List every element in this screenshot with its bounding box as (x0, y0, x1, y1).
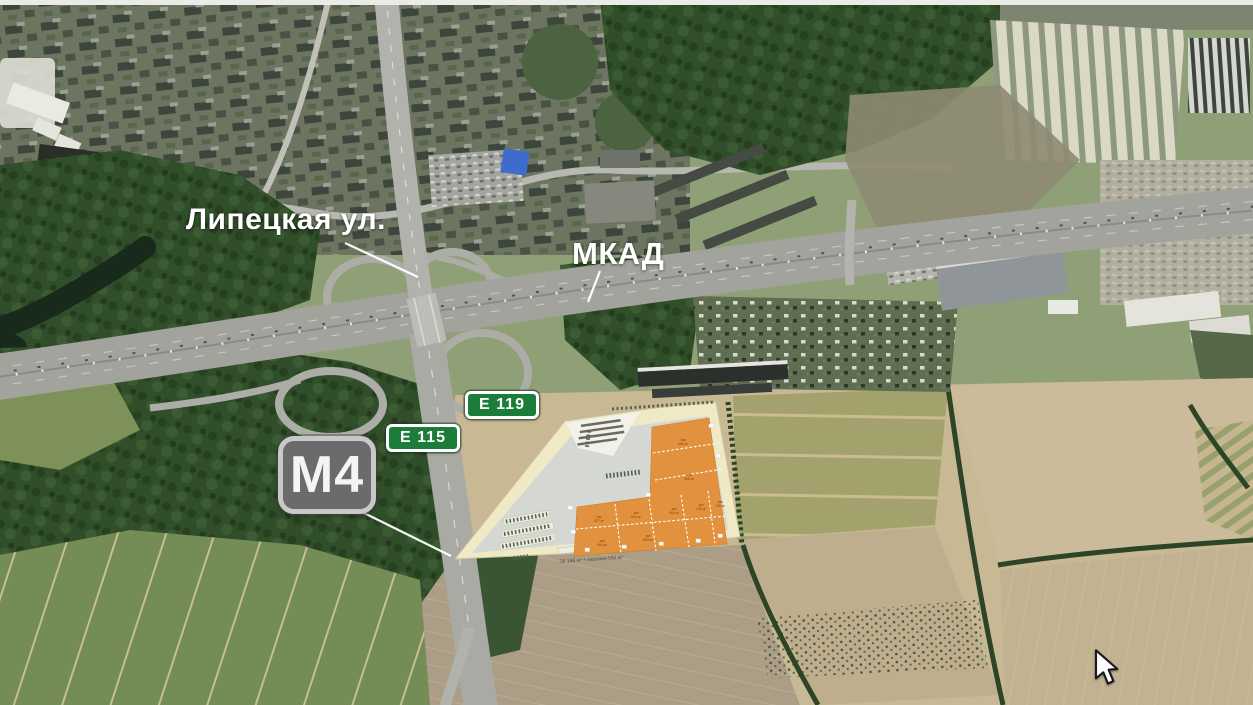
route-sign-e119-label: E 119 (479, 396, 525, 414)
ring-road-label: МКАД (572, 236, 664, 272)
satellite-terrain: 108 655 м² 109 656 м² 101 327 м² 102 653… (0, 0, 1253, 705)
map-canvas[interactable]: 108 655 м² 109 656 м² 101 327 м² 102 653… (0, 0, 1253, 705)
svg-text:656 м²: 656 м² (684, 477, 695, 481)
route-sign-e115: E 115 (386, 424, 460, 452)
svg-text:655 м²: 655 м² (678, 442, 689, 446)
svg-text:653 м²: 653 м² (631, 515, 642, 519)
street-label: Липецкая ул. (186, 203, 386, 237)
route-sign-e115-label: E 115 (400, 429, 446, 447)
route-sign-m4-label: M4 (290, 445, 364, 505)
svg-text:136 м²: 136 м² (696, 507, 707, 511)
svg-text:653 м²: 653 м² (643, 538, 654, 542)
svg-text:656 м²: 656 м² (669, 511, 680, 515)
overpass (849, 200, 852, 285)
top-edge-strip (0, 0, 1253, 5)
route-sign-e119: E 119 (465, 391, 539, 419)
svg-text:654 м²: 654 м² (597, 543, 608, 547)
svg-text:136 м²: 136 м² (715, 504, 726, 508)
blue-roof-building (500, 148, 529, 175)
mouse-cursor-icon (1092, 648, 1124, 690)
svg-text:327 м²: 327 м² (594, 519, 605, 523)
route-sign-m4: M4 (278, 436, 376, 514)
